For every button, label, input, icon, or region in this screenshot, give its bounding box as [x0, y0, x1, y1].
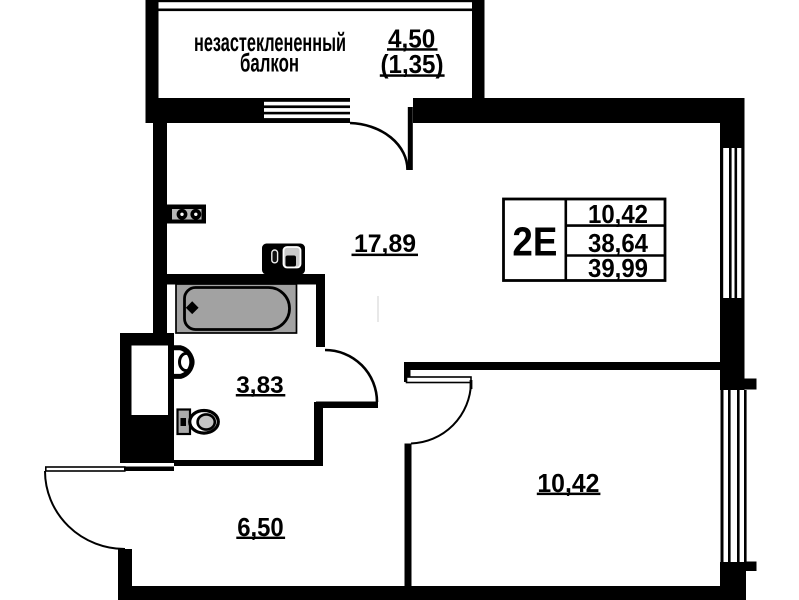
svg-text:38,64: 38,64	[588, 230, 649, 258]
svg-text:балкон: балкон	[240, 48, 299, 78]
svg-text:10,42: 10,42	[588, 201, 648, 229]
svg-text:39,99: 39,99	[588, 255, 648, 283]
svg-text:2E: 2E	[512, 219, 557, 265]
